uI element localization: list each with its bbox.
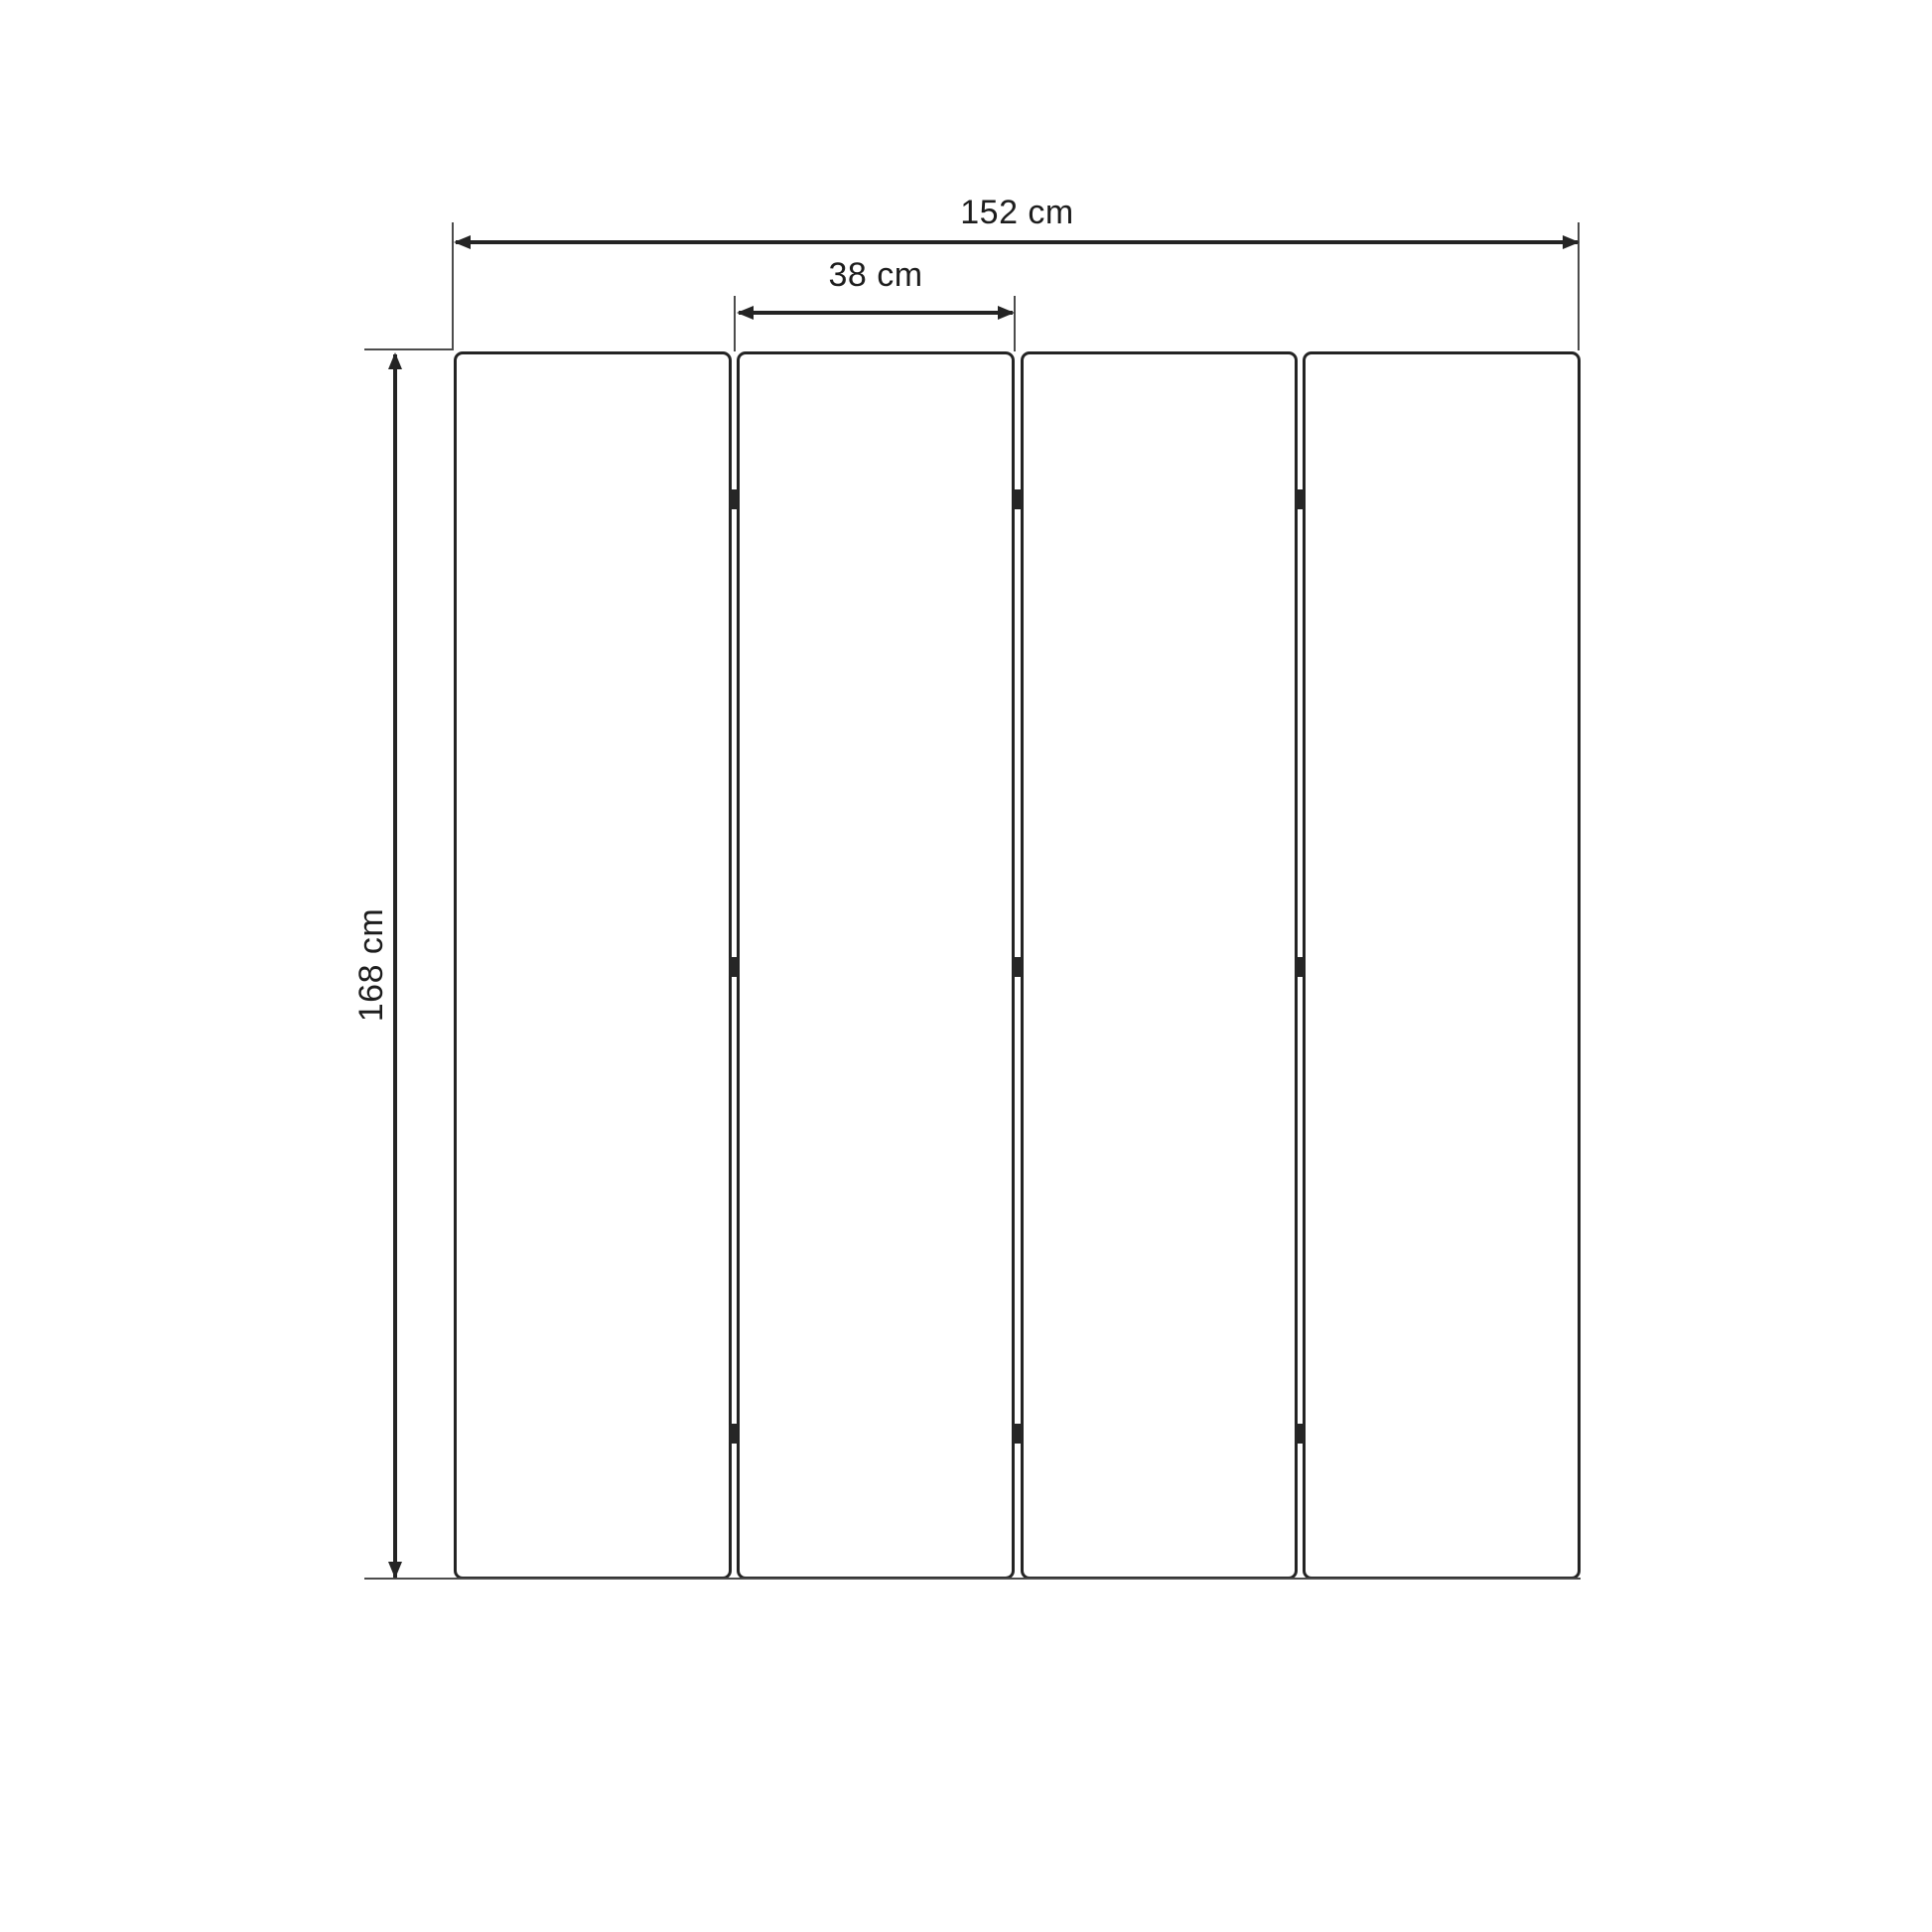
panel-4 <box>1303 351 1581 1580</box>
total-width-dimension-line <box>456 240 1578 244</box>
hinge-mark <box>1295 489 1305 509</box>
arrow-down-icon <box>388 1562 402 1579</box>
extension-line-panel-right <box>1014 296 1016 351</box>
hinge-mark <box>1295 957 1305 977</box>
arrow-right-icon <box>998 306 1015 320</box>
hinge-mark <box>729 957 739 977</box>
total-width-label: 152 cm <box>454 196 1581 229</box>
panel-2 <box>737 351 1015 1580</box>
dimension-drawing: 152 cm 38 cm 168 cm <box>0 0 1932 1932</box>
panel-1 <box>454 351 732 1580</box>
panel-3 <box>1021 351 1298 1580</box>
panel-width-dimension-line <box>739 311 1013 315</box>
extension-line-height-bottom <box>364 1578 1581 1580</box>
arrow-left-icon <box>454 235 471 249</box>
arrow-up-icon <box>388 352 402 369</box>
hinge-mark <box>1013 489 1023 509</box>
height-label: 168 cm <box>354 908 388 1023</box>
extension-line-panel-left <box>734 296 736 351</box>
arrow-right-icon <box>1563 235 1580 249</box>
arrow-left-icon <box>737 306 754 320</box>
hinge-mark <box>729 1424 739 1444</box>
panel-width-label: 38 cm <box>737 258 1015 292</box>
hinge-mark <box>1013 957 1023 977</box>
extension-line-height-top <box>364 348 454 350</box>
hinge-mark <box>729 489 739 509</box>
hinge-mark <box>1013 1424 1023 1444</box>
hinge-mark <box>1295 1424 1305 1444</box>
height-dimension-line <box>393 354 397 1578</box>
